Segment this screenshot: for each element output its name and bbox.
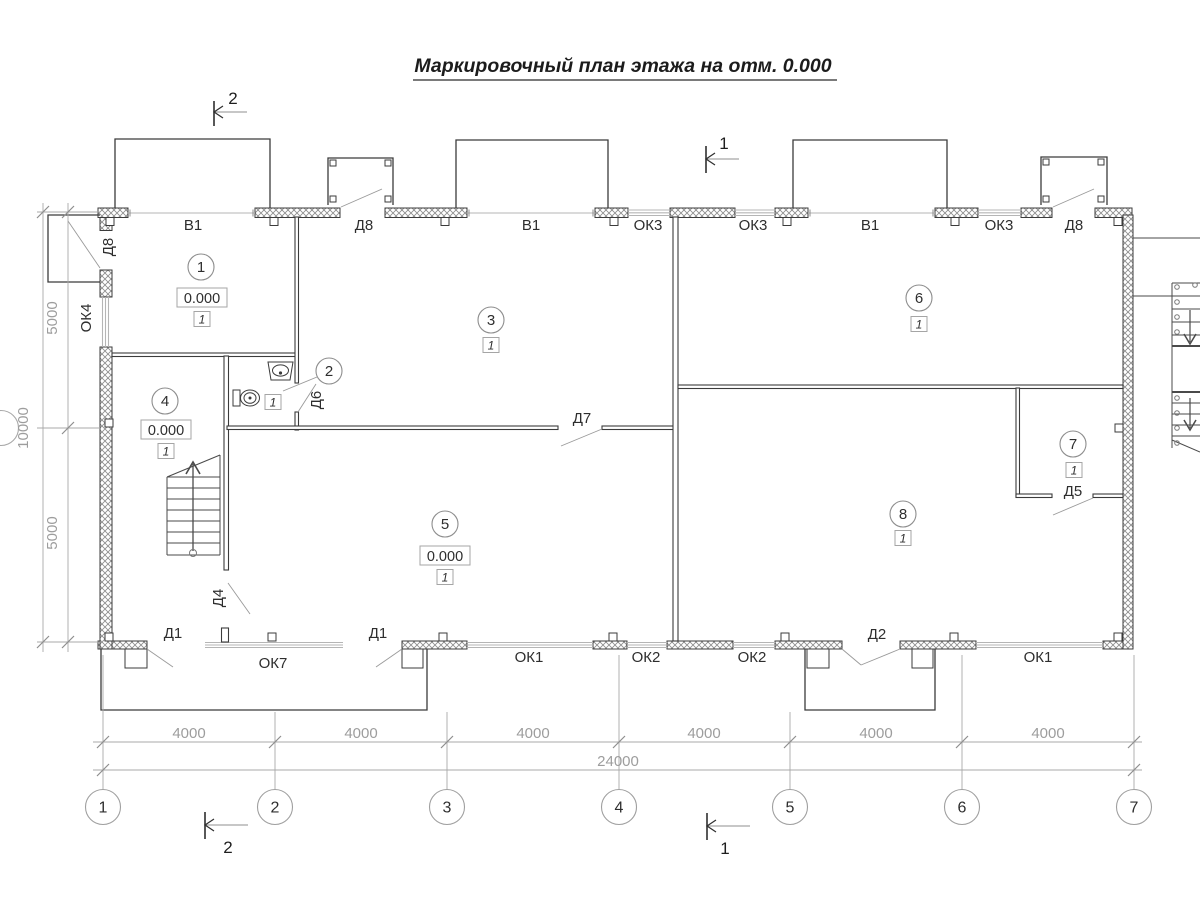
- room-type-value: 1: [488, 339, 495, 353]
- opening-label-Д8: Д8: [1065, 217, 1084, 234]
- staircase: [167, 455, 220, 557]
- dimension-span: 4000: [172, 725, 205, 742]
- section-mark-number: 2: [228, 89, 237, 108]
- opening-label-ОК3: ОК3: [739, 217, 768, 234]
- opening-label-ОК3: ОК3: [985, 217, 1014, 234]
- room-type-value: 1: [1071, 464, 1078, 478]
- grid-axis-number: 5: [786, 800, 795, 817]
- section-mark-number: 1: [719, 134, 728, 153]
- room-number: 3: [487, 312, 495, 329]
- sink-icon: [268, 362, 293, 380]
- room-type-value: 1: [270, 396, 277, 410]
- dimension-left: 5000: [44, 516, 61, 549]
- grid-axis-number: 6: [958, 800, 967, 817]
- elevation-value: 0.000: [148, 423, 184, 439]
- room-number: 1: [197, 259, 205, 276]
- opening-label-ОК7: ОК7: [259, 655, 288, 672]
- room-number: 8: [899, 506, 907, 523]
- room-markers-layer: 10.0001213140.000150.0001617181: [141, 254, 1086, 585]
- room-type-value: 1: [199, 313, 206, 327]
- elevation-value: 0.000: [427, 549, 463, 565]
- opening-label-ОК1: ОК1: [1024, 649, 1053, 666]
- room-type-value: 1: [900, 532, 907, 546]
- room-number: 4: [161, 393, 169, 410]
- opening-label-В1: В1: [861, 217, 879, 234]
- dimension-left: 5000: [44, 301, 61, 334]
- opening-label-Д2: Д2: [868, 626, 887, 643]
- room-number: 6: [915, 290, 923, 307]
- room-type-value: 1: [916, 318, 923, 332]
- opening-label-Д4: Д4: [210, 589, 227, 608]
- room-type-value: 1: [163, 445, 170, 459]
- section-mark-number: 1: [720, 839, 729, 858]
- opening-label-Д8: Д8: [355, 217, 374, 234]
- opening-label-Д5: Д5: [1064, 483, 1083, 500]
- dimension-span: 4000: [1031, 725, 1064, 742]
- room-number: 2: [325, 363, 333, 380]
- dimension-span: 4000: [344, 725, 377, 742]
- opening-label-В1: В1: [184, 217, 202, 234]
- grid-axes-layer: 1234567: [86, 788, 1152, 825]
- opening-label-Д1: Д1: [369, 625, 388, 642]
- dimension-left: 10000: [15, 407, 32, 449]
- floor-plan-canvas: Маркировочный план этажа на отм. 0.000: [0, 0, 1200, 900]
- porch-posts: [125, 159, 1104, 668]
- opening-label-Д7: Д7: [573, 410, 592, 427]
- grid-axis-number: 4: [615, 800, 624, 817]
- room-number: 5: [441, 516, 449, 533]
- floor-plan-page: Маркировочный план этажа на отм. 0.000: [0, 0, 1200, 900]
- grid-axis-number: 2: [271, 800, 280, 817]
- opening-label-ОК2: ОК2: [632, 649, 661, 666]
- grid-axis-number: 7: [1130, 800, 1139, 817]
- opening-label-ОК4: ОК4: [78, 304, 95, 333]
- external-stair: [1133, 238, 1200, 452]
- room-number: 7: [1069, 436, 1077, 453]
- grid-axis-number: 1: [99, 800, 108, 817]
- opening-label-В1: В1: [522, 217, 540, 234]
- opening-label-ОК3: ОК3: [634, 217, 663, 234]
- drawing-title: Маркировочный план этажа на отм. 0.000: [414, 55, 831, 77]
- room-type-value: 1: [442, 571, 449, 585]
- opening-label-ОК1: ОК1: [515, 649, 544, 666]
- section-text-layer: 2121: [223, 89, 729, 858]
- dimension-span: 4000: [687, 725, 720, 742]
- toilet-icon: [233, 390, 260, 406]
- interior-partitions: [112, 217, 1123, 642]
- opening-label-Д1: Д1: [164, 625, 183, 642]
- section-mark-number: 2: [223, 838, 232, 857]
- opening-label-Д6: Д6: [308, 391, 325, 410]
- dimension-span: 4000: [516, 725, 549, 742]
- toilet-fixtures: [233, 362, 293, 406]
- dimension-span: 4000: [859, 725, 892, 742]
- grid-axis-number: 3: [443, 800, 452, 817]
- opening-label-Д8: Д8: [100, 238, 117, 257]
- elevation-value: 0.000: [184, 291, 220, 307]
- dimension-total: 24000: [597, 753, 639, 770]
- opening-label-ОК2: ОК2: [738, 649, 767, 666]
